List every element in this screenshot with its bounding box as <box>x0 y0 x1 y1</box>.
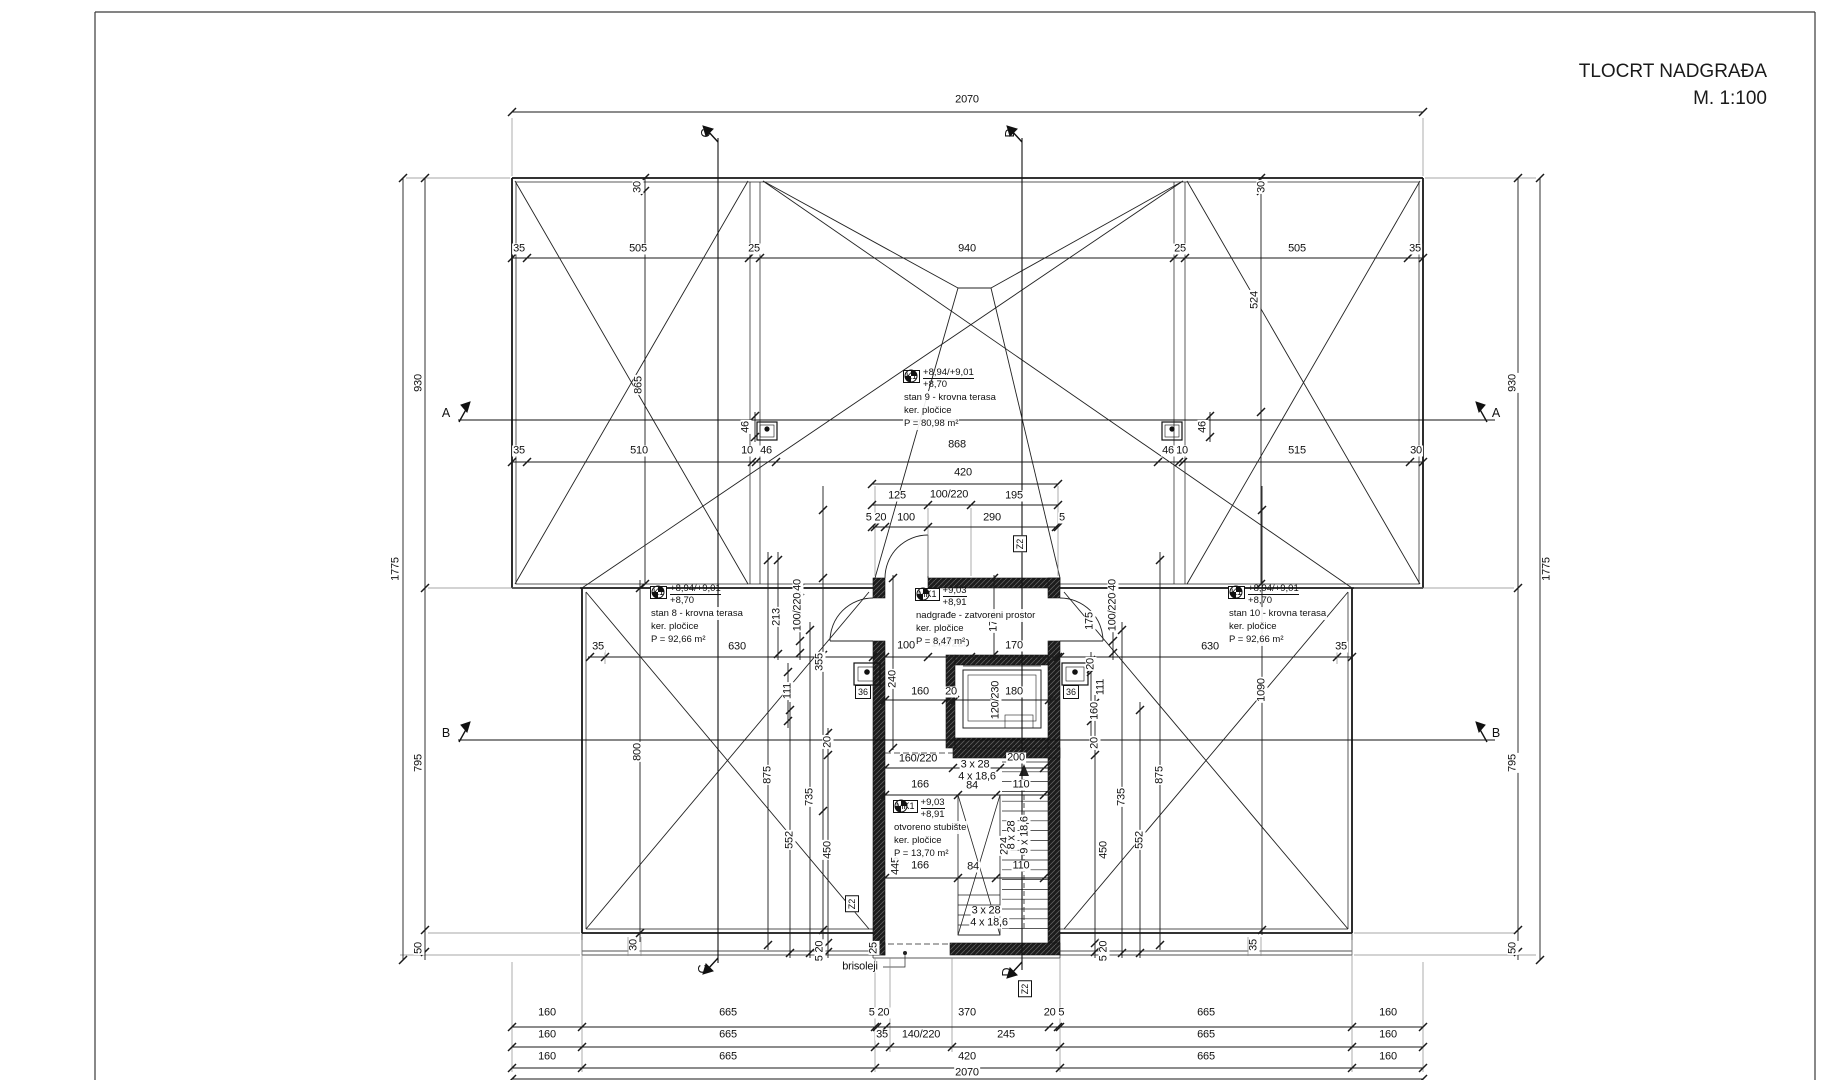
dim-label: 46 <box>759 446 773 457</box>
section-marker-label: C <box>699 128 713 137</box>
dim-label: 510 <box>629 446 649 457</box>
tag-label: 36 <box>1063 685 1079 699</box>
dim-label: 180 <box>1004 687 1024 698</box>
section-marker-label: A <box>442 406 450 420</box>
dim-label: 665 <box>1196 1008 1216 1019</box>
section-marker-label: B <box>442 726 450 740</box>
dim-label: 505 <box>1287 244 1307 255</box>
dim-label: 40 <box>793 578 804 592</box>
section-marker-label: D <box>1000 967 1014 976</box>
dim-label: 420 <box>957 1052 977 1063</box>
benchmark-icon <box>650 583 666 599</box>
dim-label: 735 <box>1117 787 1128 807</box>
annotation-stan10: K1 +8,94/+9,01+8,70 stan 10 - krovna ter… <box>1228 583 1327 646</box>
annotation-stan8: K1 +8,94/+9,01+8,70 stan 8 - krovna tera… <box>650 583 744 646</box>
dim-label: 10 <box>740 446 754 457</box>
dim-label: 30 <box>1257 180 1268 194</box>
room-material: ker. pločice <box>915 622 965 635</box>
dim-label: 160 <box>1378 1008 1398 1019</box>
dim-label: 5 20 <box>815 940 826 963</box>
tag-label: Z2 <box>845 896 859 913</box>
dim-label: 35 <box>512 446 526 457</box>
dim-label: 35 <box>1408 244 1422 255</box>
dim-label: 35 <box>591 642 605 653</box>
elevation-top: +9,03 <box>943 585 967 597</box>
dim-label: 160 <box>537 1008 557 1019</box>
dim-label: 160 <box>910 687 930 698</box>
elevation-bottom: +8,91 <box>921 809 945 820</box>
annotation-nadgrade: MK1 +9,03+8,91 nadgrađe - zatvoreni pros… <box>915 585 1036 648</box>
drawing-title: TLOCRT NADGRAĐA <box>1579 58 1767 85</box>
title-block: TLOCRT NADGRAĐA M. 1:100 <box>1579 58 1767 112</box>
dim-label: 4 x 18,6 <box>969 918 1009 929</box>
dim-label: 166 <box>910 780 930 791</box>
dim-label: 8 x 28 <box>1007 820 1018 851</box>
dim-label: 552 <box>1135 830 1146 850</box>
dim-label: 100 <box>896 513 916 524</box>
dim-label: 25 <box>747 244 761 255</box>
dim-label: 450 <box>823 840 834 860</box>
dim-label: 160 <box>1378 1030 1398 1041</box>
dim-label: 5 20 <box>865 513 888 524</box>
dim-label: 865 <box>634 375 645 395</box>
dim-label: 20 <box>1090 736 1101 750</box>
room-area: P = 80,98 m² <box>903 417 959 430</box>
dim-label: 20 <box>944 687 958 698</box>
room-material: ker. pločice <box>903 404 953 417</box>
dim-label: 3 x 28 <box>960 760 991 771</box>
dim-label: 35 <box>875 1030 889 1041</box>
dim-label: 370 <box>957 1008 977 1019</box>
dim-label: 175 <box>1085 611 1096 631</box>
elevation-bottom: +8,70 <box>1248 595 1299 606</box>
section-marker-label: C <box>696 964 710 973</box>
benchmark-icon <box>1228 583 1244 599</box>
dim-label: 1775 <box>391 556 402 582</box>
section-marker-label: B <box>1492 726 1500 740</box>
dim-label: 2070 <box>954 1068 980 1079</box>
dim-label: 9 x 18,6 <box>1020 815 1031 855</box>
dim-label: 355 <box>815 652 826 672</box>
room-name: nadgrađe - zatvoreni prostor <box>915 609 1036 622</box>
tag-label: Z2 <box>1013 536 1027 553</box>
dim-label: 125 <box>887 491 907 502</box>
dim-label: 30 <box>629 938 640 952</box>
dim-label: 795 <box>1508 753 1519 773</box>
elevation-top: +8,94/+9,01 <box>923 367 974 379</box>
drawing-sheet: 2070355052594025505353030865524355101046… <box>0 0 1839 1080</box>
floor-plan-canvas <box>0 0 1839 1080</box>
dim-label: 875 <box>1155 765 1166 785</box>
dim-label: 940 <box>957 244 977 255</box>
elevation-bottom: +8,91 <box>943 597 967 608</box>
room-name: otvoreno stubište <box>893 821 967 834</box>
room-material: ker. pločice <box>650 620 700 633</box>
annotation-stan9: K1 +8,94/+9,01+8,70 stan 9 - krovna tera… <box>903 367 997 430</box>
dim-label: 630 <box>1200 642 1220 653</box>
dim-label: 160 <box>537 1030 557 1041</box>
dim-label: 245 <box>996 1030 1016 1041</box>
dim-label: 5 20 <box>1099 940 1110 963</box>
dim-label: 213 <box>772 607 783 627</box>
room-name: stan 9 - krovna terasa <box>903 391 997 404</box>
elevation-bottom: +8,70 <box>670 595 721 606</box>
elevation-top: +9,03 <box>921 797 945 809</box>
dim-label: 100/220 <box>929 490 969 501</box>
dim-label: 50 <box>414 941 425 955</box>
dim-label: 800 <box>633 742 644 762</box>
dim-label: 450 <box>1099 840 1110 860</box>
room-area: P = 92,66 m² <box>1228 633 1284 646</box>
section-marker-label: D <box>1003 128 1017 137</box>
dim-label: 160/220 <box>898 754 938 765</box>
dim-label: 160 <box>1378 1052 1398 1063</box>
dim-label: 524 <box>1250 290 1261 310</box>
benchmark-icon <box>893 797 909 813</box>
dim-label: 46 <box>1161 446 1175 457</box>
dim-label: brisoleji <box>841 962 879 973</box>
dim-label: 35 <box>1249 938 1260 952</box>
dim-label: 160 <box>537 1052 557 1063</box>
dim-label: 5 <box>1058 513 1066 524</box>
dim-label: 46 <box>741 420 752 434</box>
room-area: P = 8,47 m² <box>915 635 966 648</box>
dim-label: 10 <box>1175 446 1189 457</box>
dim-label: 100/220 <box>1108 592 1119 632</box>
dim-label: 420 <box>953 468 973 479</box>
dim-label: 20 <box>823 735 834 749</box>
dim-label: 111 <box>1096 678 1107 696</box>
dim-label: 240 <box>888 669 899 689</box>
dim-label: 35 <box>512 244 526 255</box>
dim-label: 84 <box>965 781 979 792</box>
annotation-stubiste: MK1 +9,03+8,91 otvoreno stubište ker. pl… <box>893 797 967 860</box>
room-area: P = 92,66 m² <box>650 633 706 646</box>
dim-label: 84 <box>966 862 980 873</box>
dim-label: 505 <box>628 244 648 255</box>
elevation-bottom: +8,70 <box>923 379 974 390</box>
dim-label: 160 <box>1090 701 1101 721</box>
dim-label: 100/220 <box>793 592 804 632</box>
dim-label: 110 <box>1012 861 1031 872</box>
dim-label: 120/230 <box>991 680 1002 720</box>
dim-label: 665 <box>1196 1052 1216 1063</box>
dim-label: 3 x 28 <box>971 906 1002 917</box>
tag-label: 36 <box>855 685 871 699</box>
tag-label: Z2 <box>1018 981 1032 998</box>
section-marker-label: A <box>1492 406 1500 420</box>
dim-label: 100 <box>896 641 916 652</box>
dim-label: 50 <box>1508 941 1519 955</box>
benchmark-icon <box>903 367 919 383</box>
dim-label: 665 <box>1196 1030 1216 1041</box>
room-name: stan 8 - krovna terasa <box>650 607 744 620</box>
dim-label: 290 <box>982 513 1002 524</box>
dim-label: 515 <box>1287 446 1307 457</box>
dim-label: 2070 <box>954 95 980 106</box>
dim-label: 875 <box>763 765 774 785</box>
dim-label: 200 <box>1006 753 1026 764</box>
dim-label: 20 <box>1086 657 1097 671</box>
dim-label: 735 <box>805 787 816 807</box>
dim-label: 5 20 <box>868 1008 891 1019</box>
dim-label: 35 <box>1334 642 1348 653</box>
dim-label: 30 <box>1409 446 1423 457</box>
elevation-top: +8,94/+9,01 <box>670 583 721 595</box>
dim-label: 552 <box>785 830 796 850</box>
dim-label: 110 <box>1012 780 1031 791</box>
dim-label: 40 <box>1108 578 1119 592</box>
dim-label: 665 <box>718 1030 738 1041</box>
dim-label: 1090 <box>1257 677 1268 703</box>
room-name: stan 10 - krovna terasa <box>1228 607 1327 620</box>
elevation-top: +8,94/+9,01 <box>1248 583 1299 595</box>
dim-label: 930 <box>414 373 425 393</box>
dim-label: 20 5 <box>1043 1008 1066 1019</box>
dim-label: 930 <box>1508 373 1519 393</box>
dim-label: 25 <box>869 941 880 955</box>
dim-label: 111 <box>783 682 794 700</box>
dim-label: 30 <box>633 180 644 194</box>
dim-label: 1775 <box>1542 556 1553 582</box>
room-area: P = 13,70 m² <box>893 847 949 860</box>
room-material: ker. pločice <box>1228 620 1278 633</box>
room-material: ker. pločice <box>893 834 943 847</box>
dim-label: 46 <box>1198 420 1209 434</box>
dim-label: 665 <box>718 1052 738 1063</box>
benchmark-icon <box>915 585 931 601</box>
dim-label: 868 <box>947 440 967 451</box>
dim-label: 140/220 <box>901 1030 941 1041</box>
dim-label: 25 <box>1173 244 1187 255</box>
drawing-scale: M. 1:100 <box>1579 85 1767 112</box>
dim-label: 665 <box>718 1008 738 1019</box>
dim-label: 166 <box>910 861 930 872</box>
dim-label: 195 <box>1004 491 1024 502</box>
dim-label: 795 <box>414 753 425 773</box>
